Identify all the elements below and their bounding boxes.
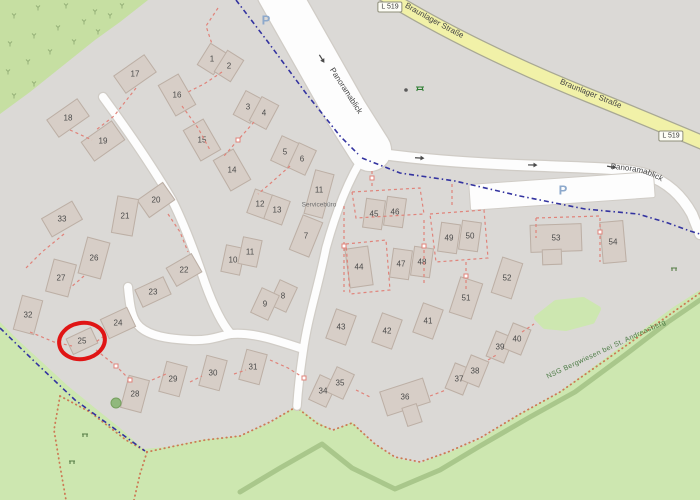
parcel-node bbox=[422, 244, 426, 248]
parcel-line bbox=[168, 214, 188, 252]
parcel-line bbox=[190, 376, 202, 382]
parcel-line bbox=[96, 88, 136, 130]
parcel-line bbox=[30, 332, 72, 346]
picnic-table-icon bbox=[416, 87, 424, 91]
map-viewport[interactable]: Braunlager StraßeBraunlager StraßePanora… bbox=[0, 0, 700, 500]
highlight-red-circle bbox=[56, 319, 108, 362]
admin-boundary bbox=[362, 158, 700, 234]
parcel-line bbox=[188, 72, 222, 92]
parcel-node bbox=[128, 378, 132, 382]
bench-icon bbox=[69, 461, 75, 464]
parcel-node bbox=[464, 274, 468, 278]
parcel-line bbox=[258, 166, 290, 194]
parcel-node bbox=[114, 364, 118, 368]
parcel-line bbox=[356, 390, 372, 398]
parcel-line bbox=[206, 8, 218, 44]
parcel-line bbox=[430, 390, 446, 396]
parcel-line bbox=[536, 216, 600, 262]
parcel-line bbox=[270, 360, 304, 378]
parcel-line bbox=[70, 276, 84, 288]
protected-area-label: NSG Bergwiesen bei St. Andreasberg bbox=[546, 319, 667, 381]
parcel-node bbox=[370, 176, 374, 180]
admin-boundary bbox=[0, 328, 145, 451]
bench-icon bbox=[671, 268, 677, 271]
parcel-line bbox=[70, 130, 92, 140]
parcel-line bbox=[152, 374, 166, 380]
parcel-line bbox=[234, 370, 246, 374]
parcel-line bbox=[346, 240, 390, 294]
tree-icon bbox=[111, 398, 121, 408]
admin-boundary bbox=[236, 0, 358, 154]
parcel-line bbox=[522, 324, 534, 332]
parcel-line bbox=[430, 210, 488, 262]
bench-icon bbox=[82, 434, 88, 437]
parcel-line bbox=[26, 234, 64, 268]
parcel-node bbox=[598, 230, 602, 234]
parcel-node bbox=[302, 376, 306, 380]
parcel-line bbox=[352, 188, 424, 218]
parcel-line bbox=[96, 350, 130, 380]
parcel-node bbox=[236, 138, 240, 142]
overlay-layer: NSG Bergwiesen bei St. Andreasberg bbox=[0, 0, 700, 500]
parcel-node bbox=[342, 244, 346, 248]
parcel-line bbox=[182, 106, 210, 150]
parcel-line bbox=[488, 354, 498, 360]
waste-basket-icon bbox=[404, 88, 408, 92]
